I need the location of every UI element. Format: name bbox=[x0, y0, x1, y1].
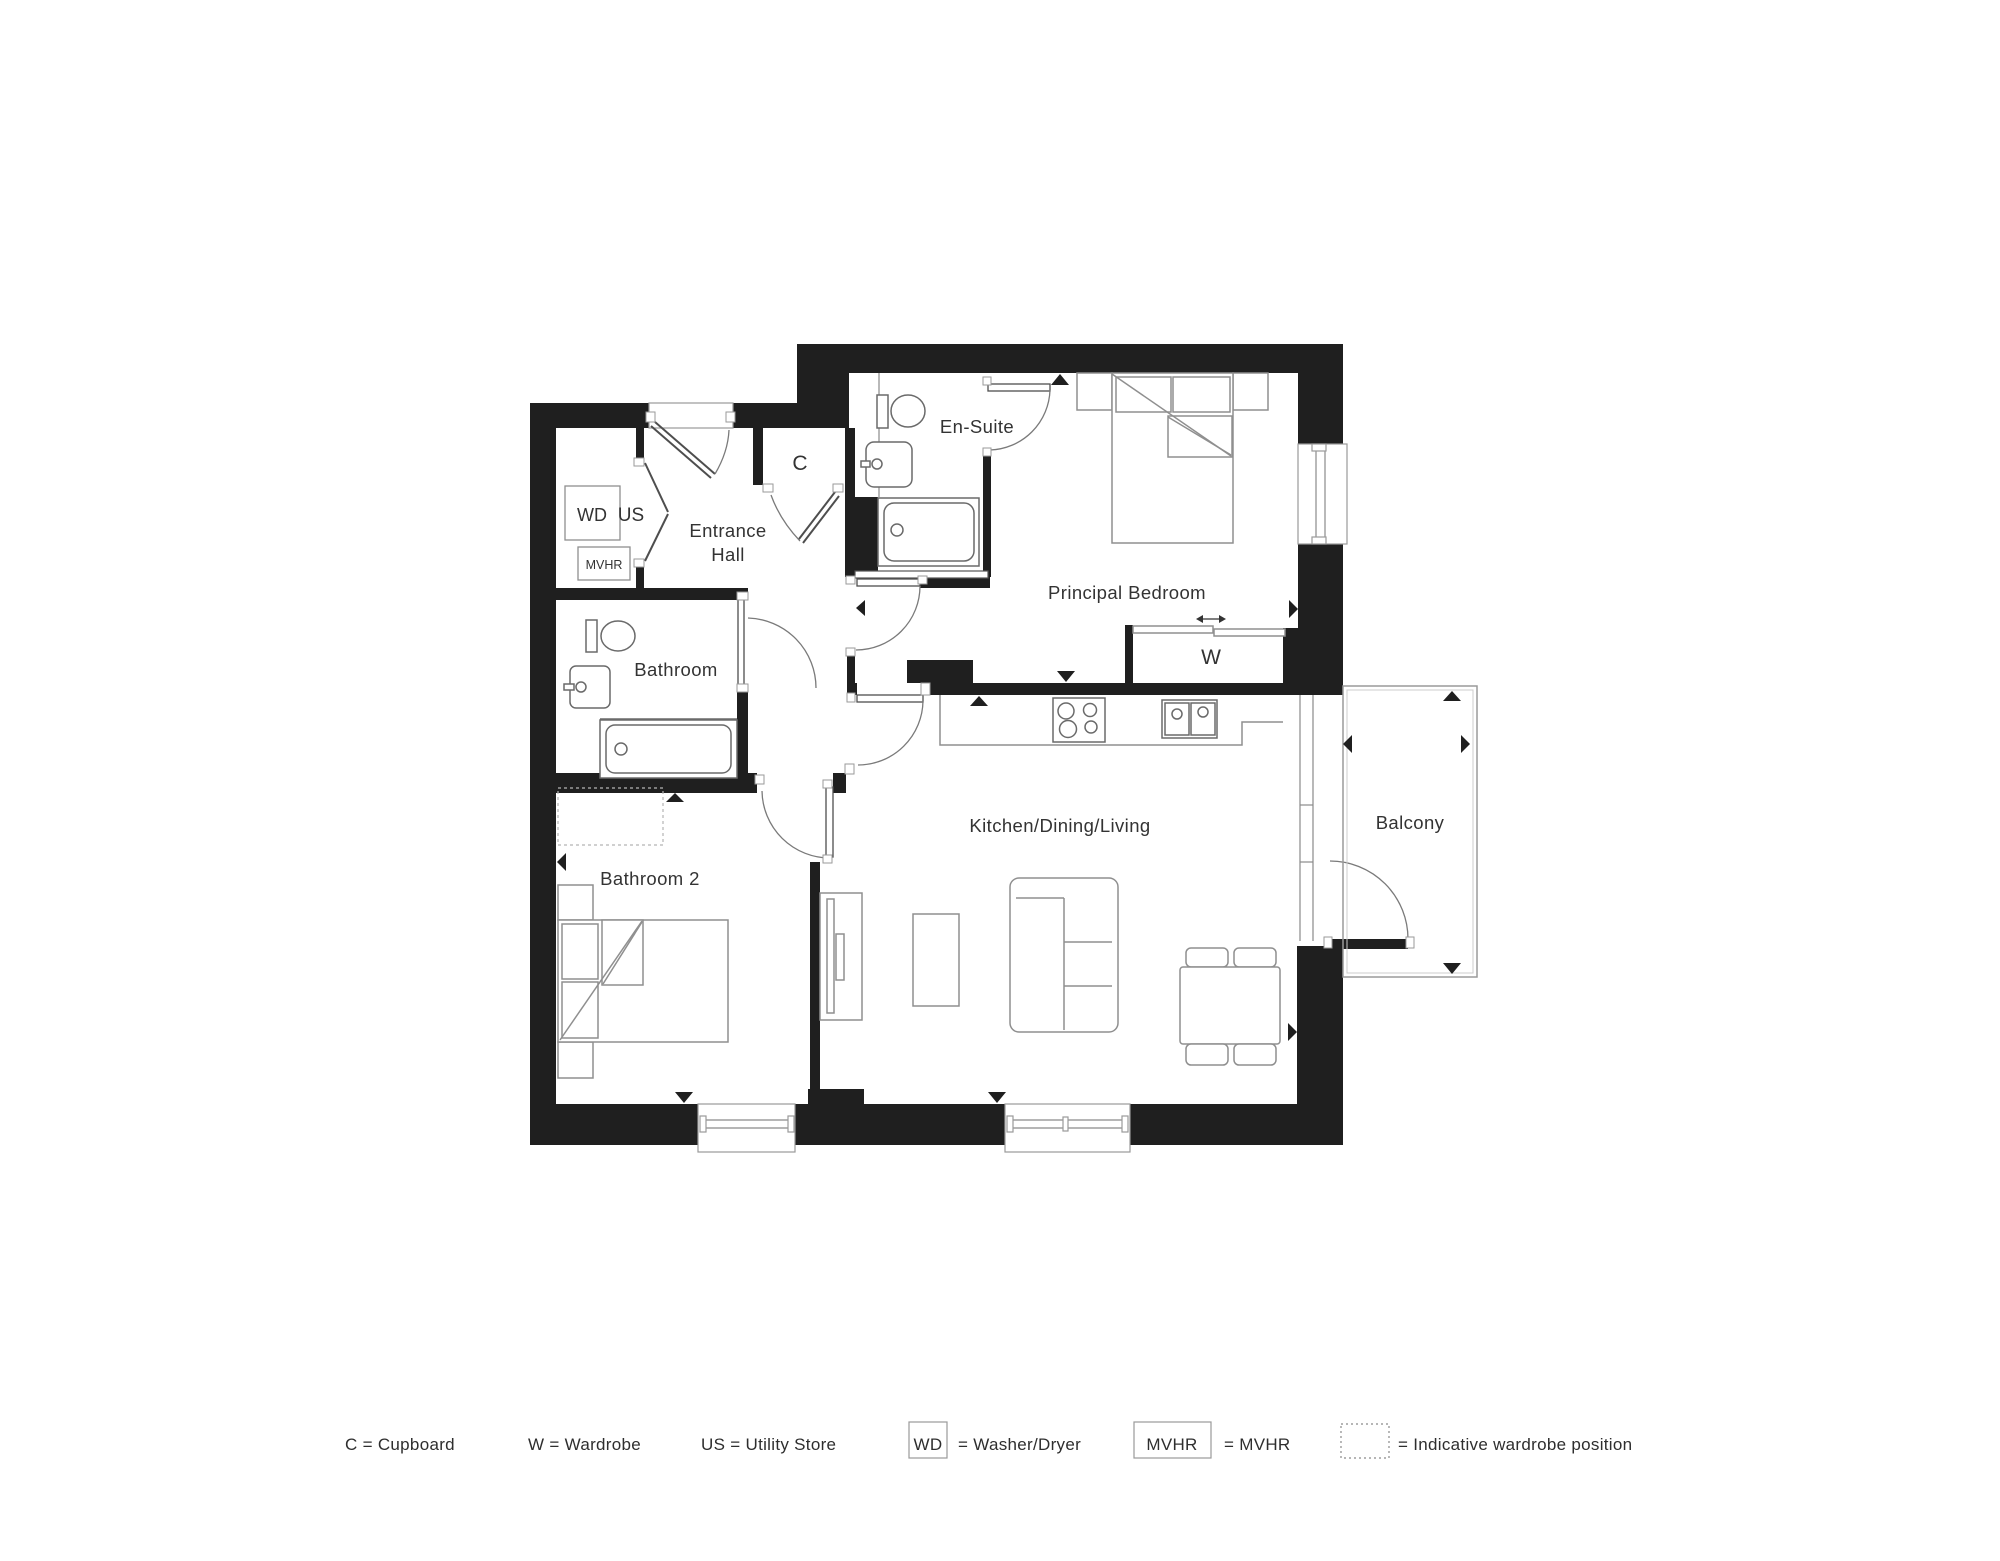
entrance-door bbox=[646, 403, 735, 478]
kitchen-fixtures bbox=[940, 695, 1283, 745]
arrow-up-bathroom2 bbox=[666, 793, 684, 802]
bedroom2-furniture bbox=[558, 788, 728, 1078]
arrow-down-bedroom bbox=[1057, 671, 1075, 682]
label-wardrobe: W bbox=[1201, 646, 1221, 669]
balcony-arrow-up bbox=[1443, 691, 1461, 701]
balcony-door bbox=[1324, 861, 1414, 949]
legend-wardrobe: W = Wardrobe bbox=[528, 1435, 641, 1454]
legend-utility-store: US = Utility Store bbox=[701, 1435, 836, 1454]
legend-wd-abbr: WD bbox=[914, 1435, 943, 1454]
dining-set bbox=[1180, 948, 1280, 1065]
arrow-left-corridor bbox=[856, 600, 865, 616]
label-balcony: Balcony bbox=[1376, 812, 1445, 833]
legend-indicative-text: = Indicative wardrobe position bbox=[1398, 1435, 1632, 1454]
bathroom-fixtures bbox=[564, 620, 737, 778]
glazing-balcony-wall bbox=[1300, 695, 1313, 941]
label-entrance-hall-line2: Hall bbox=[711, 544, 744, 565]
arrow-left-bathroom2 bbox=[557, 853, 566, 871]
coffee-table bbox=[913, 914, 959, 1006]
floorplan-drawing: WD MVHR US Entrance Hall En-Suite Princi… bbox=[0, 0, 2000, 1561]
washer-dryer-label: WD bbox=[577, 505, 607, 525]
arrow-up-kitchen bbox=[970, 696, 988, 706]
arrow-down-window2 bbox=[988, 1092, 1006, 1103]
living-furniture bbox=[820, 878, 1280, 1065]
arrow-right-living bbox=[1288, 1023, 1297, 1041]
arrow-right-bedroom bbox=[1289, 600, 1298, 618]
basin-icon bbox=[861, 442, 912, 487]
basin-icon bbox=[564, 666, 610, 708]
legend-indicative-box bbox=[1341, 1424, 1389, 1458]
bathtub-icon bbox=[600, 720, 737, 778]
bathtub-icon bbox=[878, 498, 979, 566]
indicative-wardrobe-position bbox=[558, 788, 663, 845]
label-kitchen-dining-living: Kitchen/Dining/Living bbox=[969, 815, 1150, 836]
legend: C = Cupboard W = Wardrobe US = Utility S… bbox=[345, 1422, 1632, 1458]
mvhr-label: MVHR bbox=[586, 558, 623, 572]
bathroom-door bbox=[737, 592, 816, 692]
arrow-up-bedroom bbox=[1051, 374, 1069, 385]
kitchen-door bbox=[847, 683, 930, 765]
label-bathroom: Bathroom bbox=[634, 659, 717, 680]
balcony-arrow-down bbox=[1443, 963, 1461, 974]
label-principal-bedroom: Principal Bedroom bbox=[1048, 582, 1206, 603]
hob-icon bbox=[1053, 698, 1105, 742]
legend-cupboard: C = Cupboard bbox=[345, 1435, 455, 1454]
wardrobe-sliding-doors bbox=[1133, 615, 1285, 636]
label-en-suite: En-Suite bbox=[940, 416, 1014, 437]
legend-wd-text: = Washer/Dryer bbox=[958, 1435, 1081, 1454]
tv-unit bbox=[820, 893, 862, 1020]
window-living bbox=[1005, 1104, 1130, 1152]
label-cupboard: C bbox=[792, 452, 807, 475]
principal-bedroom-door bbox=[846, 576, 927, 656]
arrow-down-window1 bbox=[675, 1092, 693, 1103]
label-entrance-hall-line1: Entrance bbox=[689, 520, 766, 541]
label-bathroom-2: Bathroom 2 bbox=[600, 868, 700, 889]
toilet-icon bbox=[586, 620, 635, 652]
corner-sofa bbox=[1010, 878, 1118, 1032]
legend-mvhr-text: = MVHR bbox=[1224, 1435, 1291, 1454]
kitchen-counter bbox=[940, 695, 1283, 745]
legend-mvhr-abbr: MVHR bbox=[1146, 1435, 1197, 1454]
utility-area: WD MVHR US bbox=[565, 486, 644, 580]
window-principal-bedroom bbox=[1298, 444, 1347, 544]
cupboard-door bbox=[763, 484, 843, 543]
window-bedroom2 bbox=[698, 1104, 795, 1152]
balcony-arrow-right bbox=[1461, 735, 1470, 753]
floorplan-page: WD MVHR US Entrance Hall En-Suite Princi… bbox=[0, 0, 2000, 1561]
sink-icon bbox=[1162, 700, 1217, 738]
utility-store-label: US bbox=[618, 505, 644, 526]
toilet-icon bbox=[877, 395, 925, 428]
